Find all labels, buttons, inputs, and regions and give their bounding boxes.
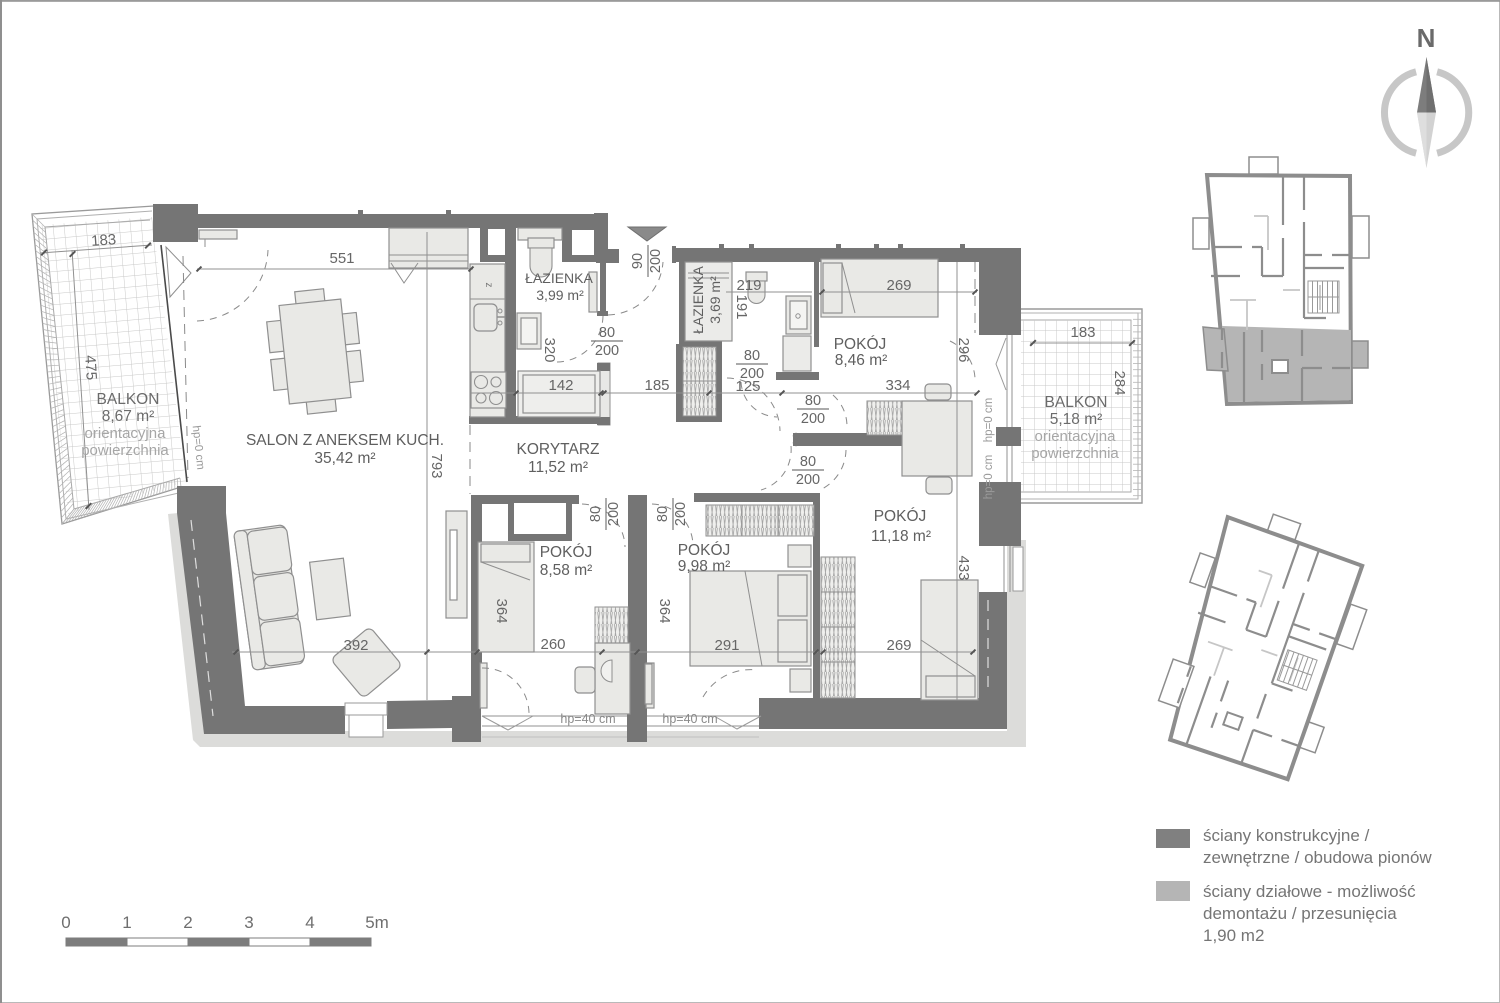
svg-text:80: 80 (805, 393, 821, 409)
svg-text:200: 200 (648, 249, 664, 273)
svg-text:793: 793 (428, 453, 445, 478)
svg-text:200: 200 (673, 502, 689, 526)
svg-text:142: 142 (548, 377, 573, 394)
svg-text:334: 334 (885, 377, 910, 394)
svg-text:191: 191 (733, 294, 750, 319)
svg-text:11,52 m²: 11,52 m² (528, 459, 588, 476)
svg-text:9,98 m²: 9,98 m² (678, 558, 731, 575)
svg-text:269: 269 (886, 277, 911, 294)
svg-text:POKÓJ: POKÓJ (540, 544, 593, 561)
svg-text:551: 551 (329, 250, 354, 267)
svg-text:364: 364 (493, 598, 510, 623)
svg-text:hp=40 cm: hp=40 cm (662, 712, 717, 726)
svg-text:8,58 m²: 8,58 m² (540, 562, 593, 579)
svg-text:200: 200 (801, 411, 825, 427)
svg-text:475: 475 (81, 355, 100, 381)
svg-text:ŁAZIENKA: ŁAZIENKA (525, 270, 593, 286)
svg-text:powierzchnia: powierzchnia (1031, 445, 1119, 462)
svg-text:11,18 m²: 11,18 m² (871, 528, 931, 545)
svg-text:5m: 5m (365, 913, 389, 932)
svg-text:ściany konstrukcyjne /: ściany konstrukcyjne / (1203, 826, 1370, 845)
svg-text:POKÓJ: POKÓJ (834, 336, 887, 353)
svg-text:hp=0 cm: hp=0 cm (983, 455, 995, 499)
svg-text:N: N (1417, 23, 1436, 53)
svg-text:183: 183 (1070, 324, 1095, 341)
svg-text:powierzchnia: powierzchnia (81, 442, 169, 459)
svg-text:hp=40 cm: hp=40 cm (560, 712, 615, 726)
svg-text:200: 200 (740, 366, 764, 382)
svg-text:3,69 m²: 3,69 m² (707, 276, 723, 324)
svg-text:269: 269 (886, 637, 911, 654)
svg-text:364: 364 (656, 598, 673, 623)
svg-text:80: 80 (655, 506, 671, 522)
svg-text:80: 80 (744, 348, 760, 364)
svg-text:219: 219 (736, 277, 761, 294)
svg-text:POKÓJ: POKÓJ (874, 508, 927, 525)
svg-text:z: z (483, 283, 494, 288)
svg-text:BALKON: BALKON (97, 391, 160, 408)
svg-text:200: 200 (595, 343, 619, 359)
svg-text:4: 4 (305, 913, 314, 932)
svg-text:284: 284 (1111, 370, 1128, 395)
svg-text:0: 0 (61, 913, 70, 932)
svg-text:296: 296 (955, 337, 972, 362)
svg-text:ściany działowe - możliwość: ściany działowe - możliwość (1203, 882, 1416, 901)
svg-text:200: 200 (606, 502, 622, 526)
svg-text:80: 80 (599, 325, 615, 341)
svg-text:3: 3 (244, 913, 253, 932)
svg-text:320: 320 (541, 337, 558, 362)
svg-text:BALKON: BALKON (1045, 394, 1108, 411)
svg-text:1: 1 (122, 913, 131, 932)
svg-text:KORYTARZ: KORYTARZ (517, 441, 600, 458)
svg-text:POKÓJ: POKÓJ (678, 542, 731, 559)
svg-text:8,46 m²: 8,46 m² (835, 352, 888, 369)
svg-text:zewnętrzne / obudowa pionów: zewnętrzne / obudowa pionów (1203, 848, 1432, 867)
svg-text:SALON Z ANEKSEM KUCH.: SALON Z ANEKSEM KUCH. (246, 432, 444, 449)
svg-text:2: 2 (183, 913, 192, 932)
svg-text:80: 80 (588, 506, 604, 522)
svg-text:291: 291 (714, 637, 739, 654)
svg-text:90: 90 (630, 253, 646, 269)
svg-text:5,18 m²: 5,18 m² (1050, 411, 1103, 428)
svg-text:433: 433 (955, 555, 972, 580)
svg-text:35,42 m²: 35,42 m² (314, 450, 375, 467)
svg-text:demontażu / przesunięcia: demontażu / przesunięcia (1203, 904, 1397, 923)
svg-text:3,99 m²: 3,99 m² (536, 287, 584, 303)
svg-text:260: 260 (540, 636, 565, 653)
svg-text:8,67 m²: 8,67 m² (102, 408, 155, 425)
svg-text:80: 80 (800, 454, 816, 470)
svg-text:hp=0 cm: hp=0 cm (983, 398, 995, 442)
svg-text:orientacyjna: orientacyjna (85, 425, 167, 442)
svg-text:orientacyjna: orientacyjna (1035, 428, 1117, 445)
svg-text:ŁAZIENKA: ŁAZIENKA (690, 266, 706, 334)
svg-text:392: 392 (343, 637, 368, 654)
svg-text:183: 183 (91, 231, 117, 250)
svg-text:185: 185 (644, 377, 669, 394)
svg-text:1,90 m2: 1,90 m2 (1203, 926, 1264, 945)
svg-text:200: 200 (796, 472, 820, 488)
